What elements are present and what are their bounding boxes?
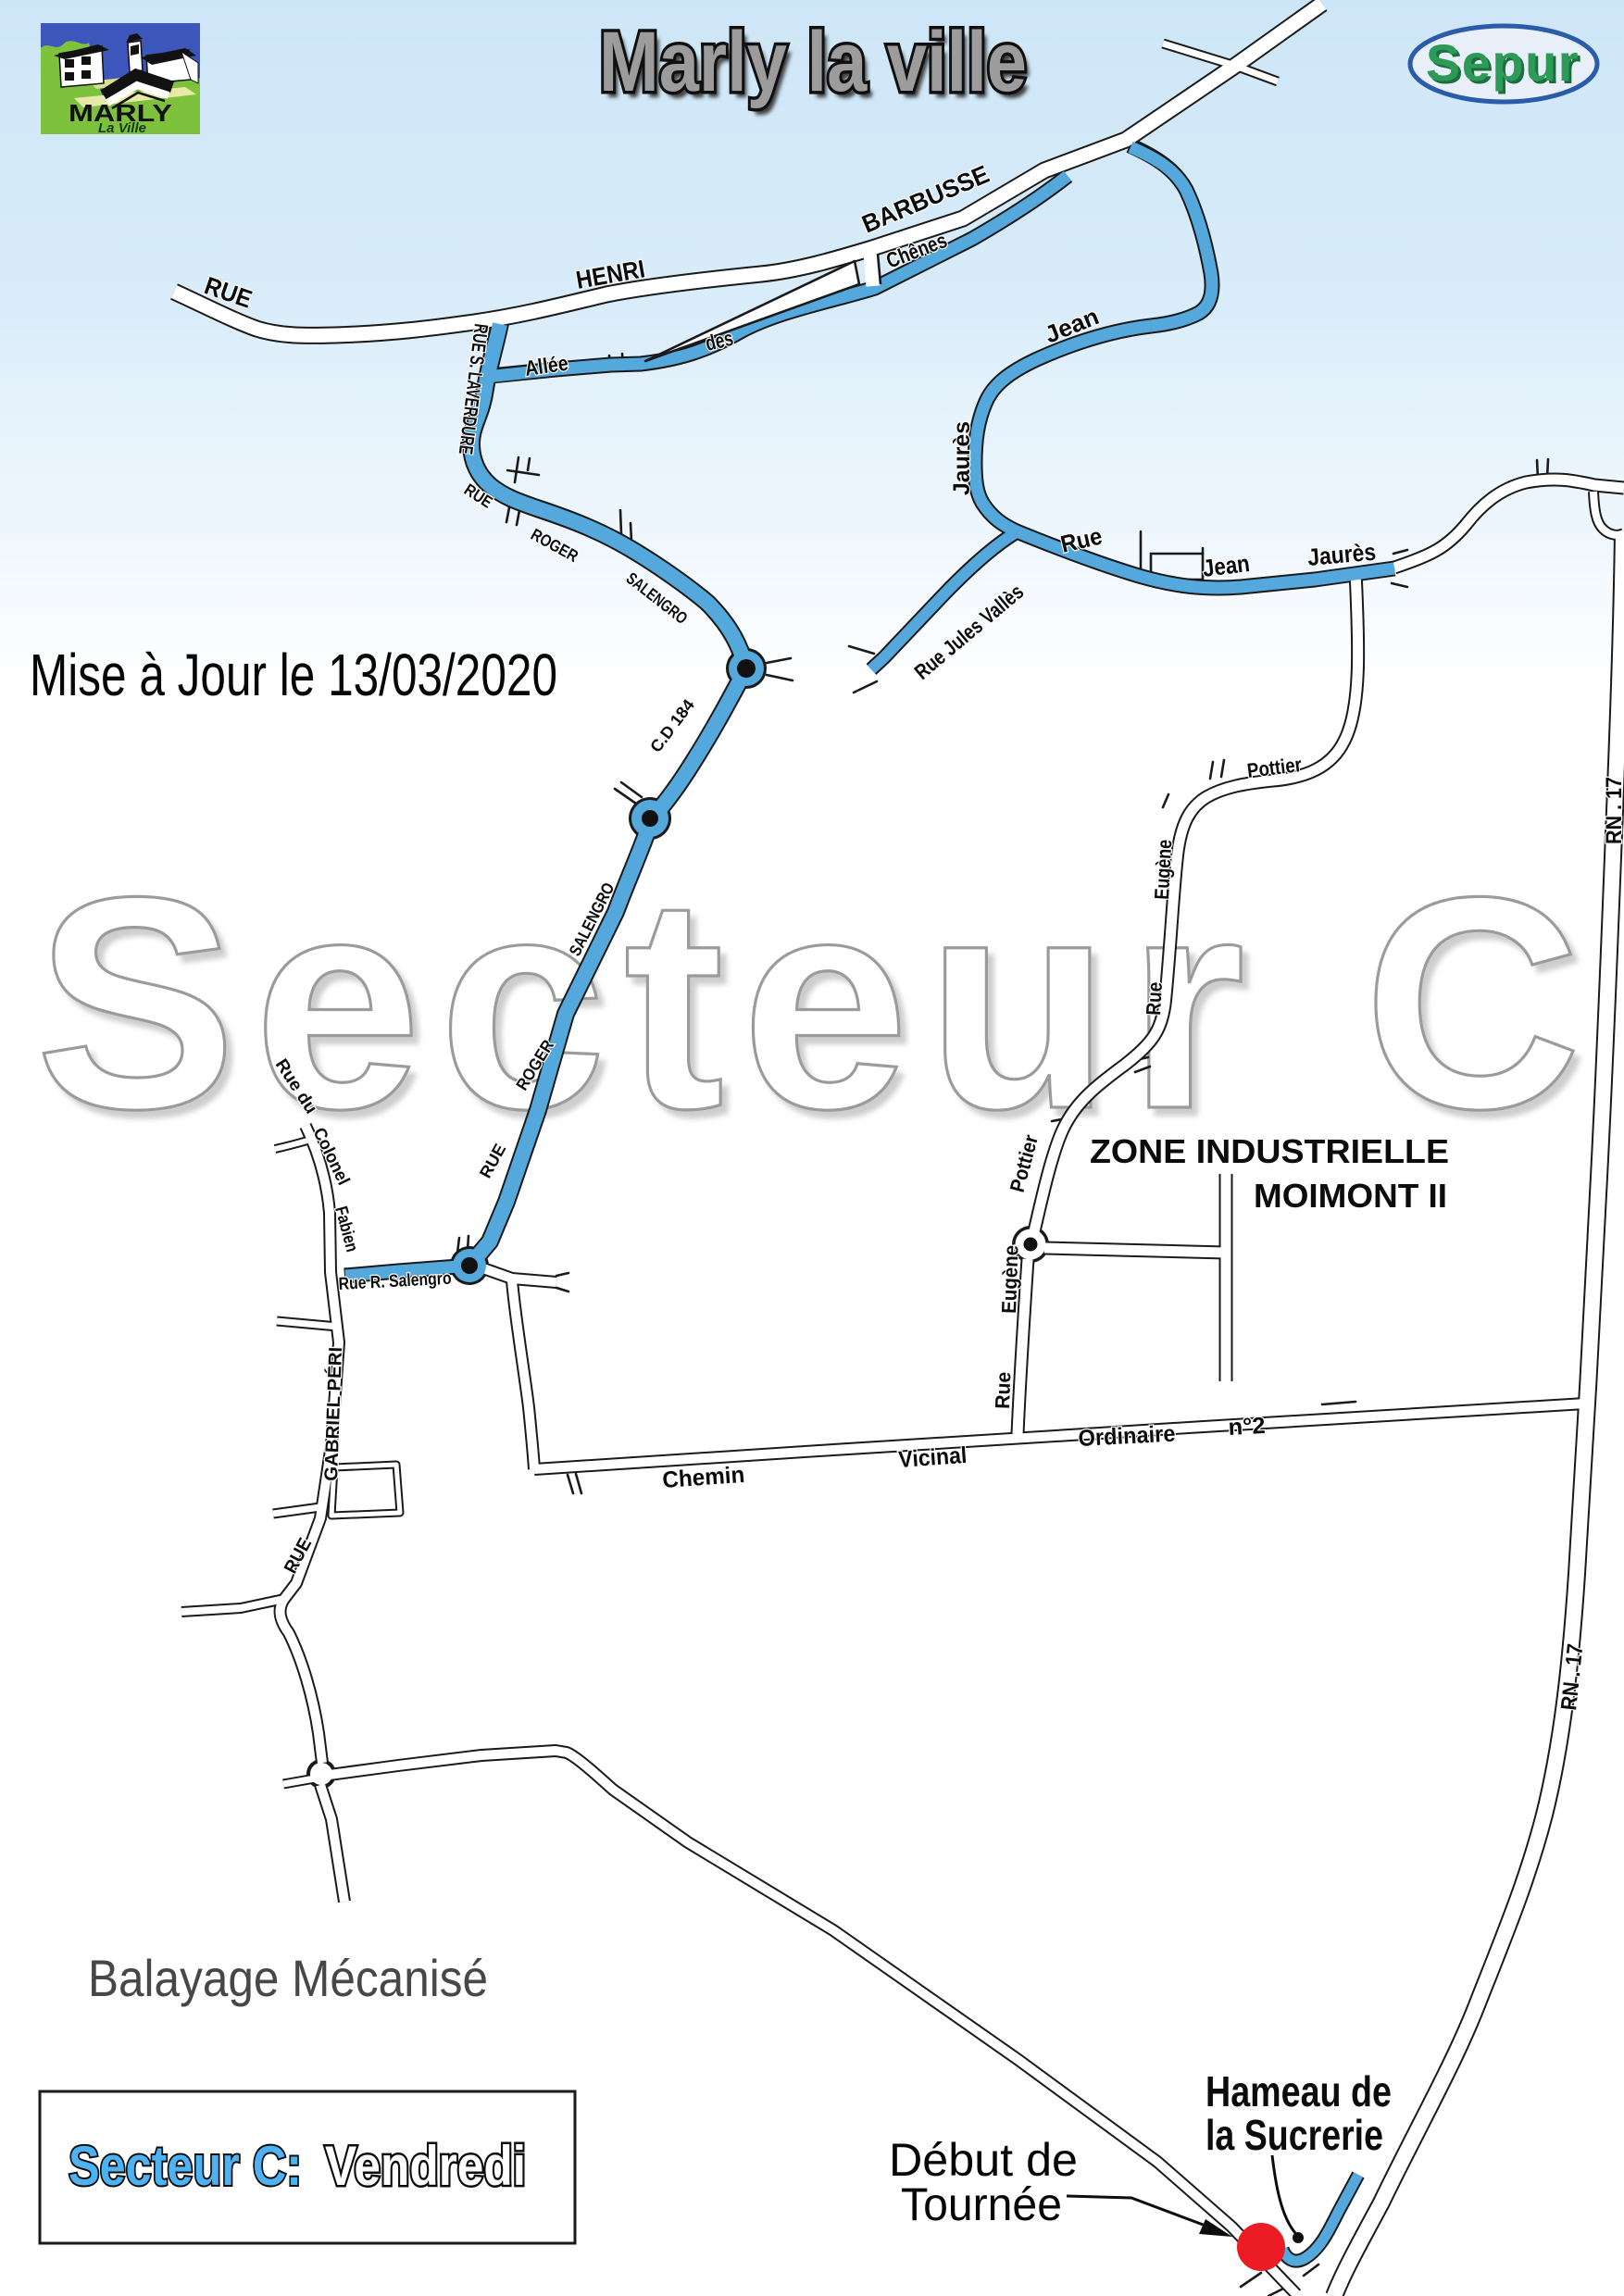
svg-text:Eugène: Eugène xyxy=(1150,839,1176,900)
svg-text:la Sucrerie: la Sucrerie xyxy=(1206,2111,1383,2159)
svg-text:Rue: Rue xyxy=(991,1371,1015,1409)
svg-text:Tournée: Tournée xyxy=(901,2178,1062,2230)
svg-text:Jaurès: Jaurès xyxy=(949,421,975,495)
svg-text:n°2: n°2 xyxy=(1228,1413,1266,1441)
svg-text:ZONE INDUSTRIELLE: ZONE INDUSTRIELLE xyxy=(1090,1132,1449,1170)
svg-text:MOIMONT II: MOIMONT II xyxy=(1254,1177,1447,1215)
svg-text:La Ville: La Ville xyxy=(98,120,146,136)
svg-text:Ordinaire: Ordinaire xyxy=(1078,1421,1176,1452)
svg-text:Sepur: Sepur xyxy=(1426,33,1580,92)
svg-text:RN . 17: RN . 17 xyxy=(1602,777,1624,844)
svg-text:Mise à Jour le 13/03/2020: Mise à Jour le 13/03/2020 xyxy=(30,642,557,708)
svg-text:Vicinal: Vicinal xyxy=(897,1442,968,1473)
svg-text:Jaurès: Jaurès xyxy=(1306,538,1377,571)
svg-text:Balayage Mécanisé: Balayage Mécanisé xyxy=(88,1949,488,2007)
svg-text:Vendredi: Vendredi xyxy=(325,2135,526,2197)
svg-text:Secteur C:: Secteur C: xyxy=(69,2135,302,2197)
svg-text:Eugène: Eugène xyxy=(997,1244,1023,1314)
svg-text:Marly la ville: Marly la ville xyxy=(599,15,1027,109)
svg-text:Jean: Jean xyxy=(1201,549,1251,582)
svg-text:Hameau de: Hameau de xyxy=(1206,2067,1392,2115)
svg-text:Rue: Rue xyxy=(1142,981,1167,1016)
